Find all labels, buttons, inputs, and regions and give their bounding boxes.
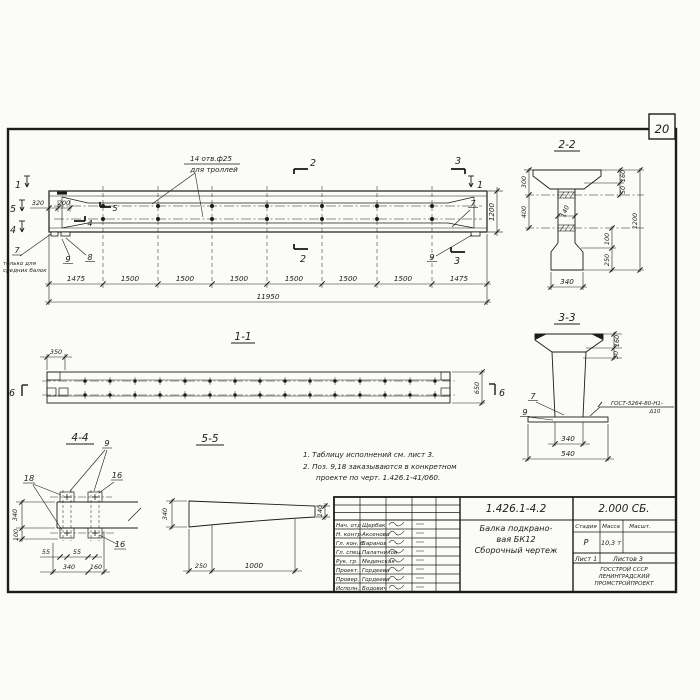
marker-4-left: 4	[10, 225, 16, 236]
section-3-3-label: 3-3	[558, 312, 575, 324]
section-2-2-label: 2-2	[558, 139, 575, 151]
sig-role: Провер.	[336, 577, 359, 583]
plan-outline	[47, 372, 450, 403]
s22-ticks	[526, 167, 642, 289]
bottom-block	[551, 243, 583, 270]
sig-role: Рук. гр.	[336, 559, 358, 565]
cut-4-inner: 4	[87, 218, 92, 228]
sig-name: Палатников	[362, 550, 397, 556]
marker-1-right: 1	[477, 180, 483, 191]
view-4-4: 4-4	[11, 432, 141, 575]
sig-role: Проект.	[336, 568, 359, 574]
v55-dim-1000: 1000	[245, 561, 264, 570]
callout-9-left: 9	[65, 254, 70, 264]
dim-seg: 1500	[176, 274, 195, 283]
support-note-1: только для	[3, 261, 37, 267]
s11-marker-6-left: 6	[9, 388, 15, 399]
s22-dim-340: 340	[560, 277, 574, 286]
scale-label: Масшт.	[629, 524, 651, 530]
s22-dim-1200: 1200	[631, 213, 639, 229]
callout-7-left: 7	[14, 245, 20, 255]
sig-name: Гордеева	[362, 568, 390, 574]
dim-seg: 1475	[67, 274, 86, 283]
sheets-total: Листов 3	[612, 555, 643, 563]
sig-role: Нач. отд	[336, 523, 361, 529]
dim-seg: 1475	[450, 274, 469, 283]
sig-name: Мединская	[362, 559, 395, 565]
s22-dim-250: 250	[603, 254, 611, 266]
stage-label: Стадия	[575, 524, 597, 530]
marker-3-bottom: 3	[454, 256, 460, 267]
section-3-3: 3-3 7 9 ГОСТ-5264-80-Н1- Δ10 160 30	[520, 312, 674, 462]
mass-value: 10,3 т	[601, 539, 621, 547]
dim-seg: 1500	[339, 274, 358, 283]
callout-7-right: 7	[470, 198, 476, 208]
v55-shape	[189, 501, 315, 527]
dim-320: 320	[32, 199, 44, 207]
s11-dim-650: 650	[473, 382, 481, 394]
s22-dim-400: 400	[520, 206, 528, 218]
support-note-2: средних балок	[3, 268, 47, 274]
view-5-5-label: 5-5	[201, 433, 218, 445]
weld-wedge-right	[591, 334, 603, 340]
v44-callout-16a: 16	[112, 470, 122, 480]
plan-dots	[84, 377, 437, 399]
view-4-4-label: 4-4	[71, 432, 88, 444]
org-line-1: ГОССТРОЙ СССР	[600, 566, 648, 573]
section-1-1-label: 1-1	[234, 331, 251, 343]
s11-marker-6-right: 6	[499, 388, 505, 399]
note-line-2: 2. Поз. 9,18 заказываются в конкретном	[303, 462, 457, 471]
weld-note-line2: Δ10	[649, 409, 661, 415]
v55-dim-140: 140	[316, 505, 324, 517]
top-flange	[533, 170, 601, 189]
dim-seg: 1500	[285, 274, 304, 283]
s33-dim-540: 540	[561, 449, 575, 458]
notes-block: 1. Таблицу исполнений см. лист 3. 2. Поз…	[303, 450, 457, 482]
dim-total: 11950	[257, 292, 280, 301]
callout-9-right: 9	[429, 252, 434, 262]
section-1-1: 1-1 350 650 6 6	[9, 331, 505, 406]
title-block: 1.426.1-4.2 2.000 СБ. Балка подкрано- ва…	[334, 497, 676, 592]
v44-callout-leaders	[23, 448, 126, 549]
drawing-title-1: Балка подкрано-	[480, 523, 553, 533]
callout-leaders	[12, 208, 478, 264]
dim-seg: 1500	[230, 274, 249, 283]
cut-marks	[74, 169, 465, 252]
drawing-title-2: вая БК12	[496, 534, 535, 544]
embedded-plate	[57, 192, 67, 195]
v44-dim-55b: 55	[73, 548, 81, 556]
weld-note-line1: ГОСТ-5264-80-Н1-	[611, 401, 663, 407]
note-line-1: 1. Таблицу исполнений см. лист 3.	[303, 450, 434, 459]
stage-value: Р	[584, 537, 589, 547]
v44-crosses	[64, 494, 98, 536]
marker-2-bottom: 2	[300, 254, 306, 265]
bottom-plate	[528, 417, 608, 422]
sig-role: Гл. кон. б	[336, 541, 364, 547]
hole-note-line2: для троллей	[189, 165, 238, 174]
web-panel	[62, 197, 474, 228]
sig-name: Баранов	[362, 541, 387, 547]
v55-dim-250: 250	[195, 562, 207, 570]
v44-dim-340b: 340	[63, 563, 75, 571]
sheet-number: Лист 1	[574, 555, 597, 563]
sig-role: Гл. спец.	[336, 550, 362, 556]
s22-dim-160: 160	[619, 170, 627, 182]
callout-8: 8	[87, 252, 92, 262]
s33-dim-30: 30	[612, 351, 620, 359]
sig-name: Щербак	[362, 523, 386, 529]
marker-3-top: 3	[455, 156, 461, 167]
v44-callout-16b: 16	[115, 539, 125, 549]
v44-dim-100: 100	[12, 529, 20, 541]
drawing-title-3: Сборочный чертеж	[475, 545, 558, 555]
v44-callout-9: 9	[104, 438, 109, 448]
s33-dim-160: 160	[613, 335, 621, 347]
v44-callout-18: 18	[24, 473, 34, 483]
sig-name: Гордеева	[362, 577, 390, 583]
plan-end-details	[47, 372, 450, 396]
s22-dim-300: 300	[520, 176, 528, 188]
s11-dim-350: 350	[50, 348, 62, 356]
series-number: 2.000 СБ.	[598, 503, 649, 515]
signature-rows: Нач. отд Щербак Н. контр. Аксенова Гл. к…	[336, 523, 397, 592]
drawing-sheet: 20	[0, 0, 700, 700]
marker-5-left: 5	[10, 204, 16, 215]
section-2-2: 2-2 300 400	[520, 139, 644, 290]
dim-seg: 1500	[394, 274, 413, 283]
hole-note-line1: 14 отв.ф25	[190, 154, 232, 163]
s22-dim-100: 100	[603, 233, 611, 245]
sig-role: Исполн.	[336, 586, 360, 592]
sig-name: Бодович	[362, 586, 387, 592]
weld-wedge-left	[535, 334, 547, 340]
s33-callout-9: 9	[522, 407, 527, 417]
mass-label: Масса	[602, 524, 620, 530]
v44-dim-340v: 340	[11, 509, 19, 521]
v44-dim-160: 160	[90, 563, 102, 571]
sig-role: Н. контр.	[336, 532, 363, 538]
support-pads	[51, 232, 480, 236]
dim-1200: 1200	[487, 202, 496, 221]
org-line-2: ЛЕНИНГРАДСКИЙ	[597, 573, 650, 580]
main-holes	[101, 204, 433, 220]
note-line-3: проекте по черт. 1.426.1-41/060.	[316, 473, 440, 482]
sig-name: Аксенова	[361, 532, 390, 538]
s33-dim-340: 340	[561, 434, 575, 443]
dim-seg: 1500	[121, 274, 140, 283]
dim-200: 200	[58, 199, 70, 207]
org-line-3: ПРОМСТРОЙПРОЕКТ	[595, 580, 655, 587]
page-number: 20	[655, 122, 670, 136]
main-elevation-view: 14 отв.ф25 для троллей 320 200 1200 1475…	[3, 154, 503, 305]
marker-1-left: 1	[15, 180, 21, 191]
cut-5-inner: 5	[112, 203, 117, 213]
s11-dim-lines	[40, 354, 485, 405]
marker-2-top: 2	[310, 158, 316, 169]
s33-callout-7: 7	[530, 391, 536, 401]
top-flange	[535, 334, 603, 352]
doc-number: 1.426.1-4.2	[486, 503, 547, 515]
s22-dim-50: 50	[619, 186, 627, 194]
s22-dim-140: 140	[559, 204, 571, 218]
v44-dim-55a: 55	[42, 548, 50, 556]
v55-dim-340: 340	[161, 508, 169, 520]
main-dashed-verticals	[103, 186, 432, 288]
